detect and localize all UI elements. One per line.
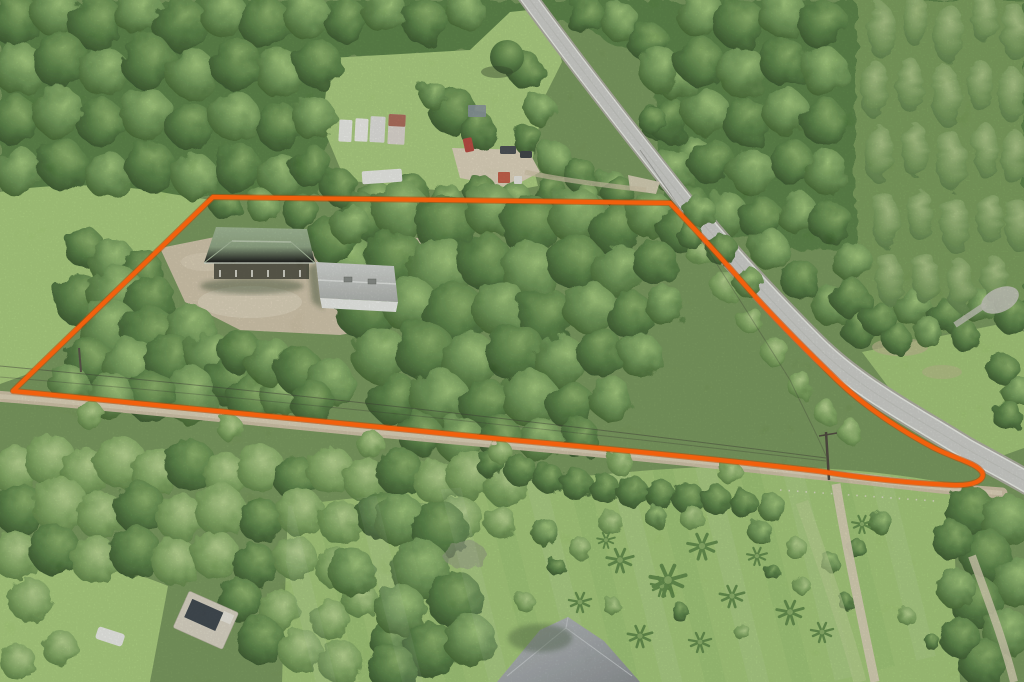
aerial-photo-canvas [0,0,1024,682]
aerial-photo [0,0,1024,682]
photo-grain-light [0,0,1024,682]
